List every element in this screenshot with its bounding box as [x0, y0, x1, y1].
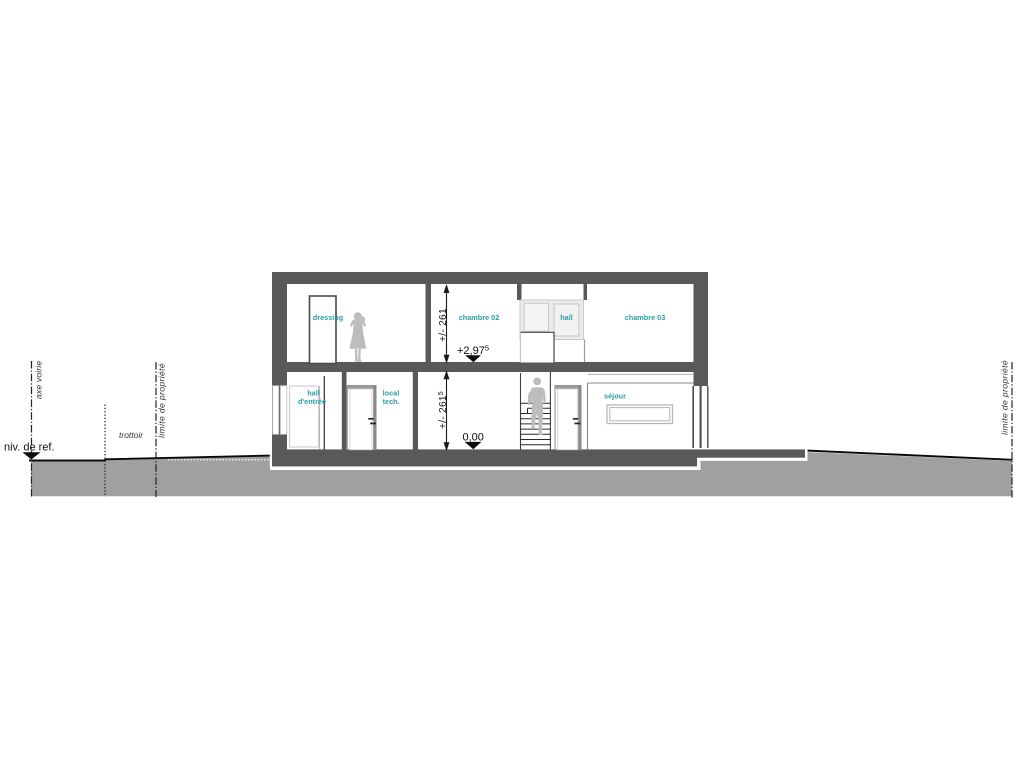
svg-text:niv. de ref.: niv. de ref.: [4, 442, 55, 454]
svg-text:+2,975: +2,975: [457, 344, 489, 358]
svg-text:hall: hall: [560, 313, 573, 322]
svg-text:+/- 2615: +/- 2615: [438, 391, 449, 429]
svg-text:chambre 03: chambre 03: [625, 313, 666, 322]
svg-text:dressing: dressing: [313, 313, 343, 322]
svg-text:trottoir: trottoir: [119, 430, 144, 440]
svg-text:séjour: séjour: [604, 392, 626, 401]
svg-text:chambre 02: chambre 02: [459, 313, 500, 322]
svg-text:d'entrée: d'entrée: [298, 397, 326, 406]
svg-text:+/- 261: +/- 261: [438, 308, 449, 342]
svg-text:tech.: tech.: [383, 397, 400, 406]
svg-text:limite de propriété: limite de propriété: [1000, 360, 1010, 435]
svg-text:0,00: 0,00: [463, 432, 484, 444]
svg-text:limite de propriété: limite de propriété: [157, 363, 167, 438]
svg-text:axe voirie: axe voirie: [34, 361, 44, 399]
